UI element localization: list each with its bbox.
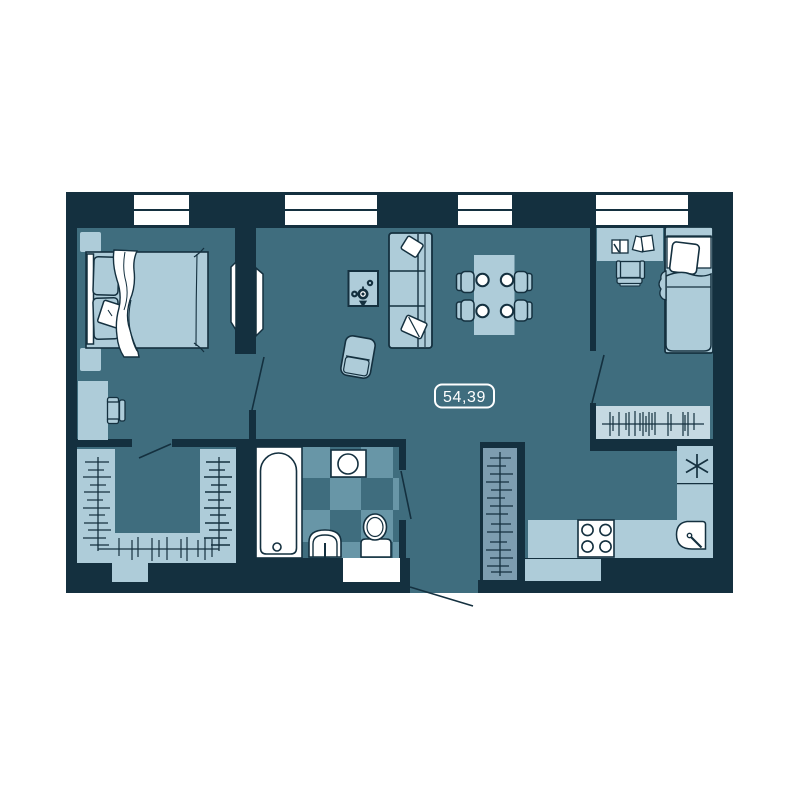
svg-text:54,39: 54,39 [443,389,486,406]
